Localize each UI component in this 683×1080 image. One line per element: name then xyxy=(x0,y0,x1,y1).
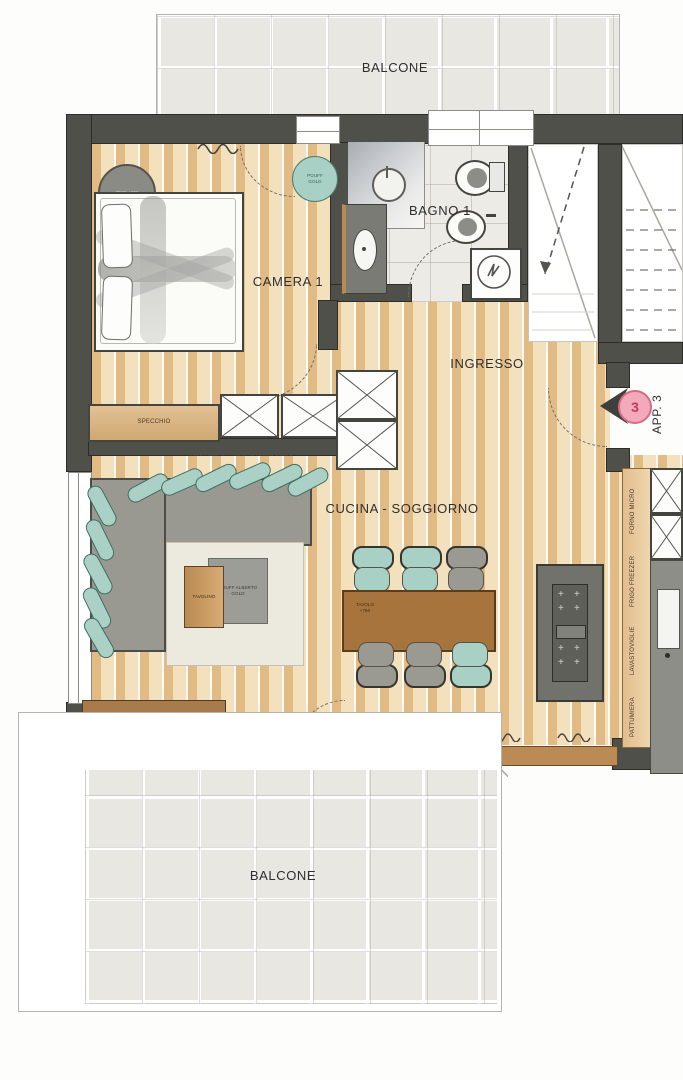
room-label-ingresso: INGRESSO xyxy=(442,356,532,371)
apartment-label: APP. 3 xyxy=(650,382,664,446)
apartment-number-badge: 3 xyxy=(618,390,652,424)
burner-icon: + xyxy=(574,603,580,614)
shower-drain xyxy=(372,168,406,202)
sink-drain xyxy=(362,247,366,251)
coffee-table: TAVOLINO xyxy=(184,566,224,628)
room-label-cucina-soggiorno: CUCINA - SOGGIORNO xyxy=(322,501,482,516)
wall-stair-bottom xyxy=(598,342,683,364)
burner-icon: + xyxy=(558,589,564,600)
wall-top xyxy=(66,114,683,144)
round-pouf-teal-label: POUFF GOLD xyxy=(302,173,328,184)
round-pouf-teal: POUFF GOLD xyxy=(292,156,338,202)
bath-vanity xyxy=(342,204,387,294)
appliance-label-lavastoviglie: LAVASTOVIGLIE xyxy=(630,618,638,684)
appliance-label-forno: FORNO MICRO xyxy=(630,478,638,544)
curtain-squiggle-camera xyxy=(196,140,242,154)
balcony-bottom-area xyxy=(85,770,497,1004)
washing-machine xyxy=(470,248,522,300)
burner-icon: + xyxy=(574,589,580,600)
dining-table-note: TAVOLO +750 xyxy=(352,602,378,613)
mirror-dresser: SPECCHIO xyxy=(88,404,220,442)
closet-column-x xyxy=(336,370,398,470)
stairwell-right xyxy=(622,144,683,342)
burner-icon: + xyxy=(574,643,580,654)
burner-icon: + xyxy=(574,657,580,668)
room-label-bagno1: BAGNO 1 xyxy=(400,203,480,218)
mirror-dresser-label: SPECCHIO xyxy=(138,419,171,427)
wardrobe-x-camera xyxy=(220,394,345,438)
room-label-camera1: CAMERA 1 xyxy=(240,274,336,289)
wall-stair-column xyxy=(598,144,622,344)
pillow xyxy=(101,275,133,340)
kitchen-sink-counter xyxy=(650,560,683,774)
pillow xyxy=(101,203,133,268)
dining-chair xyxy=(450,640,492,688)
room-label-balcone-top: BALCONE xyxy=(340,60,450,75)
floor-plan: BALCONE xyxy=(0,0,683,1080)
wall-finish-note: RIVESTIMENTO PARETE IN LEGNO LISCIO xyxy=(140,452,340,458)
wall-entry-top xyxy=(606,362,630,388)
kitchen-island: + + + + + + + + xyxy=(536,564,604,702)
dining-chair xyxy=(404,640,446,688)
bidet-tap xyxy=(486,214,496,217)
room-label-balcone-bottom: BALCONE xyxy=(228,868,338,883)
appliance-label-frigo: FRIGO FREEZER xyxy=(630,548,638,614)
cooktop-controls xyxy=(556,625,586,639)
burner-icon: + xyxy=(558,657,564,668)
bed xyxy=(94,192,244,352)
shower-handle xyxy=(386,166,388,178)
appliance-label-pattumiera: PATTUMIERA xyxy=(630,688,638,746)
curtain-squiggle xyxy=(556,730,594,742)
dining-chair xyxy=(400,546,442,594)
dining-chair xyxy=(356,640,398,688)
kitchen-cabinets-x xyxy=(650,468,683,560)
toilet-tank xyxy=(489,162,505,192)
wall-camera-ingresso xyxy=(318,300,338,350)
bidet-bowl xyxy=(458,218,477,236)
kitchen-sink xyxy=(657,589,680,649)
dining-chair xyxy=(352,546,394,594)
cooktop: + + + + + + + + xyxy=(552,584,588,682)
faucet xyxy=(665,653,670,658)
toilet-bowl xyxy=(467,168,487,188)
stairwell-left xyxy=(528,144,598,342)
dining-chair xyxy=(446,546,488,594)
coffee-table-label: TAVOLINO xyxy=(193,594,216,600)
balcony-door-top xyxy=(428,110,534,146)
burner-icon: + xyxy=(558,603,564,614)
washing-machine-drum xyxy=(472,250,516,294)
burner-icon: + xyxy=(558,643,564,654)
camera-window xyxy=(296,116,340,144)
